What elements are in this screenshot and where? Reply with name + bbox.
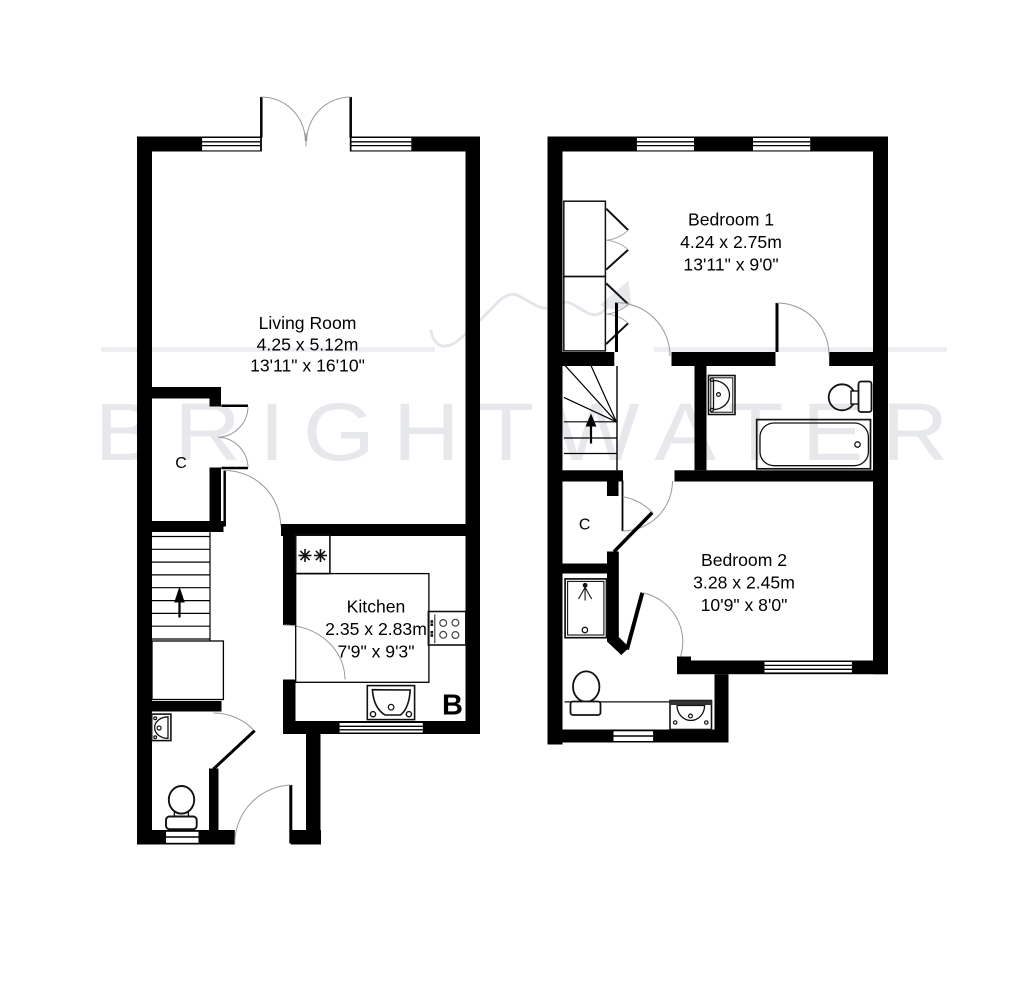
svg-text:C: C	[175, 455, 187, 472]
svg-text:4.24 x 2.75m: 4.24 x 2.75m	[680, 232, 782, 252]
svg-text:13'11" x 16'10": 13'11" x 16'10"	[250, 356, 365, 376]
svg-text:13'11" x 9'0": 13'11" x 9'0"	[683, 255, 778, 275]
svg-text:10'9" x 8'0": 10'9" x 8'0"	[701, 595, 788, 615]
svg-text:2.35 x 2.83m: 2.35 x 2.83m	[325, 619, 427, 639]
svg-text:C: C	[579, 517, 591, 534]
svg-text:Kitchen: Kitchen	[347, 597, 406, 617]
svg-text:7'9" x 9'3": 7'9" x 9'3"	[338, 642, 415, 662]
svg-text:4.25 x 5.12m: 4.25 x 5.12m	[257, 335, 359, 355]
svg-text:Living Room: Living Room	[259, 313, 357, 333]
svg-text:3.28 x 2.45m: 3.28 x 2.45m	[693, 573, 795, 593]
svg-text:B: B	[442, 690, 463, 722]
svg-text:Bedroom 1: Bedroom 1	[688, 210, 774, 230]
svg-text:BRIGHTWATER: BRIGHTWATER	[95, 387, 967, 478]
svg-text:Bedroom 2: Bedroom 2	[701, 550, 787, 570]
